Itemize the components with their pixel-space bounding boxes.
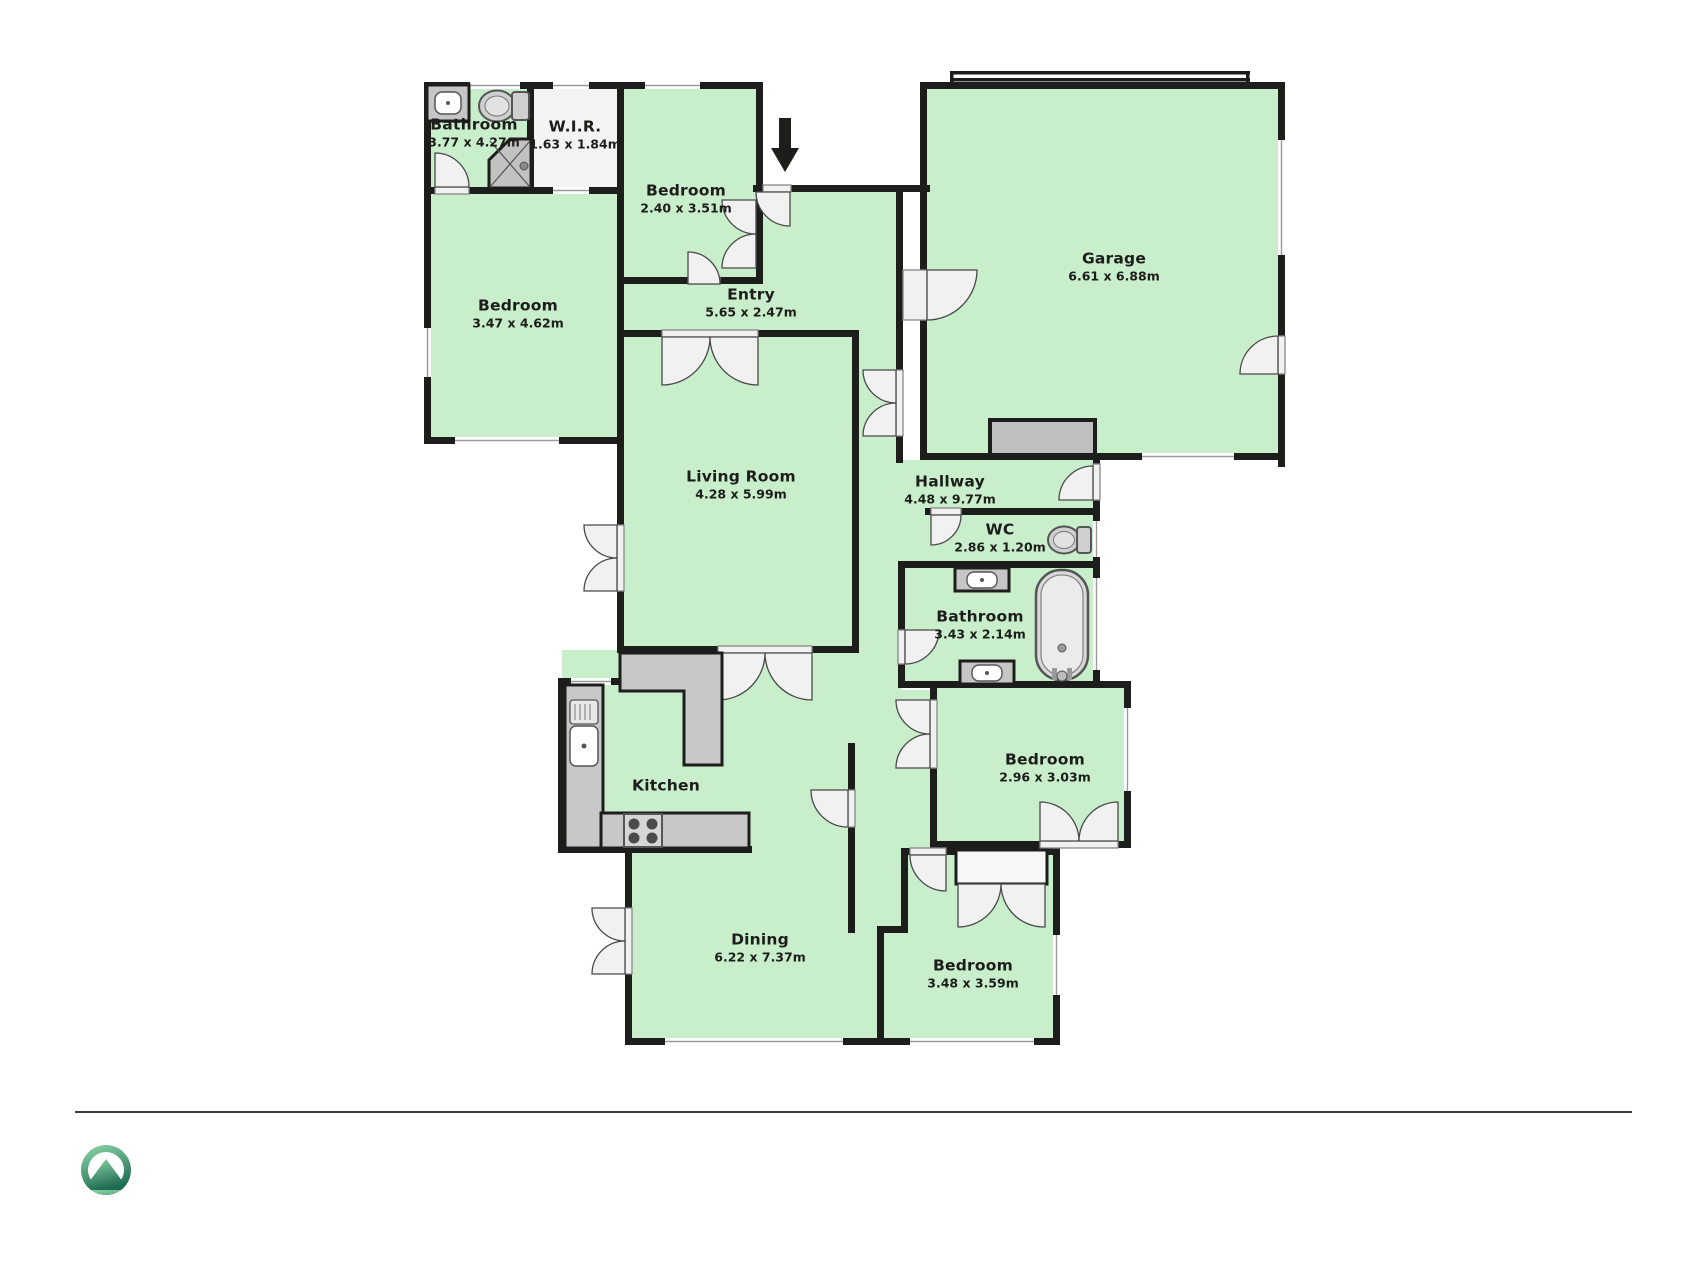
kitchen-sink-icon: [570, 700, 598, 766]
floorplan-drawing: [0, 0, 1707, 1280]
floorplan-page: Bathroom3.77 x 4.27m W.I.R.1.63 x 1.84m …: [0, 0, 1707, 1280]
bathtub-icon: [1036, 570, 1088, 681]
wc-toilet-icon: [1048, 527, 1091, 554]
garage-bench: [990, 420, 1095, 455]
ensuite-toilet-icon: [479, 91, 529, 122]
stove-icon: [624, 814, 662, 847]
entry-arrow-icon: [771, 118, 799, 172]
bathroom-sink-bottom-icon: [960, 661, 1014, 684]
footer: ARIZTO 9 Gresham Place, Taradale Disclai…: [0, 1120, 1707, 1240]
ensuite-sink-icon: [427, 85, 469, 121]
footer-divider: [75, 1111, 1632, 1113]
shower-icon: [489, 139, 531, 188]
bathroom-sink-top-icon: [955, 568, 1009, 591]
